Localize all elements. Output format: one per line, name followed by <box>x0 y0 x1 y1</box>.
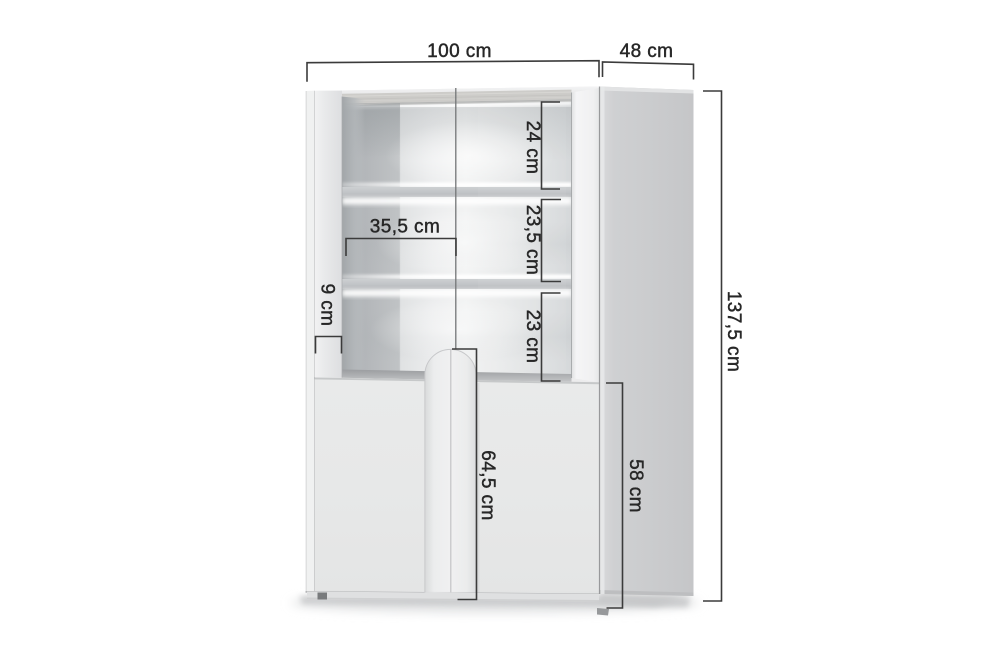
svg-text:58 cm: 58 cm <box>625 459 646 513</box>
svg-text:35,5 cm: 35,5 cm <box>370 217 440 238</box>
svg-text:137,5 cm: 137,5 cm <box>723 291 744 372</box>
svg-text:24 cm: 24 cm <box>522 121 543 175</box>
svg-text:23 cm: 23 cm <box>522 310 543 364</box>
svg-text:64,5 cm: 64,5 cm <box>477 450 498 520</box>
svg-text:23,5 cm: 23,5 cm <box>522 205 543 275</box>
svg-text:9 cm: 9 cm <box>317 284 338 327</box>
svg-text:48 cm: 48 cm <box>620 41 674 62</box>
svg-text:100 cm: 100 cm <box>427 41 492 62</box>
